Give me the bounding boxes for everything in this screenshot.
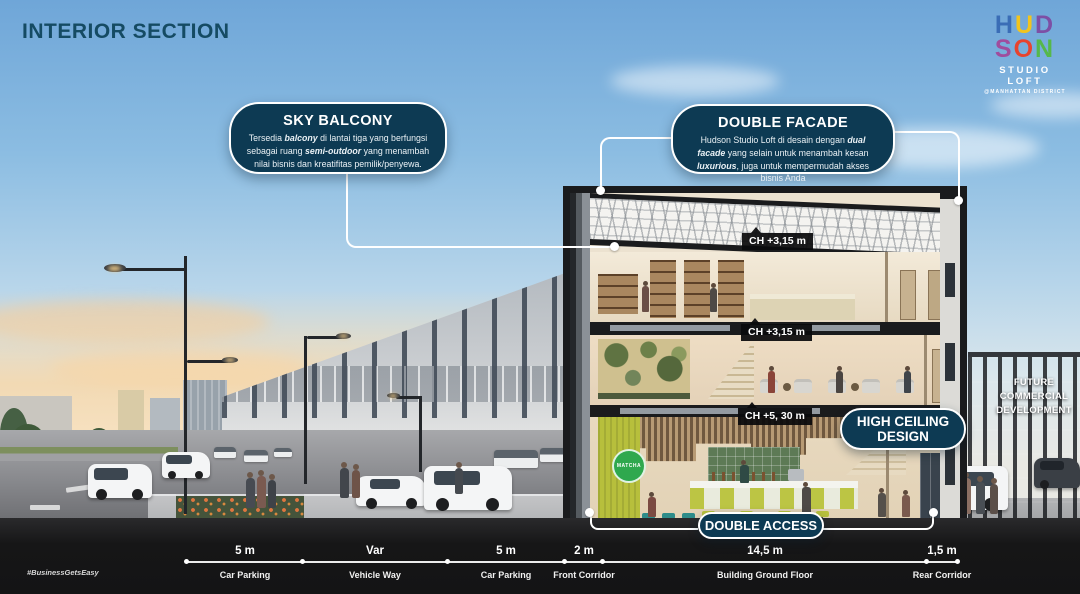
double-access-badge: DOUBLE ACCESS	[698, 512, 824, 539]
person-silhouette	[268, 480, 276, 508]
interior-wall	[924, 335, 927, 405]
dimension-label: Car Parking	[185, 570, 305, 580]
high-ceiling-badge: HIGH CEILING DESIGN	[840, 408, 966, 450]
person-silhouette	[246, 478, 255, 508]
high-ceiling-text: HIGH CEILING DESIGN	[856, 414, 950, 444]
connector-dot	[610, 242, 619, 251]
dimension-label: Front Corridor	[524, 570, 644, 580]
person-silhouette	[352, 470, 360, 498]
side-table	[783, 383, 791, 391]
person-silhouette	[257, 476, 266, 508]
reception-counter	[750, 294, 855, 320]
poster: FUTURE COMMERCIAL DEVELOPMENT	[0, 0, 1080, 594]
ceiling-height-text: CH +5, 30 m	[745, 410, 805, 422]
person-silhouette	[455, 468, 463, 494]
connector-double-access-right	[822, 516, 934, 530]
logo-district: @MANHATTAN DISTRICT	[983, 89, 1067, 95]
street-light-arm	[396, 396, 420, 399]
car	[356, 476, 426, 506]
car-window	[1040, 461, 1064, 470]
interior-wall	[886, 447, 889, 523]
car-wheel	[366, 498, 377, 509]
car-wheel	[1040, 480, 1049, 489]
rear-facade	[940, 193, 960, 537]
dimension-value: 5 m	[185, 545, 305, 557]
dimension-value: 2 m	[524, 545, 644, 557]
dimension-label: Rear Corridor	[882, 570, 1002, 580]
lane-marking	[30, 505, 60, 510]
connector-dot	[929, 508, 938, 517]
car	[244, 450, 268, 462]
car	[274, 448, 292, 457]
bar-counter	[690, 481, 858, 509]
connector-dot	[596, 186, 605, 195]
logo-letter: N	[1035, 35, 1055, 63]
person-silhouette	[768, 371, 775, 393]
rear-window	[945, 343, 955, 381]
dimension-segment: 1,5 m Rear Corridor	[882, 545, 1002, 580]
matcha-cafe-sign: MATCHA	[617, 463, 641, 469]
car	[162, 452, 210, 478]
matcha-cafe-logo: MATCHA	[612, 449, 646, 483]
car-wheel	[132, 489, 143, 500]
lamp-glow	[389, 394, 397, 398]
car-wheel	[96, 489, 107, 500]
connector-dot	[954, 196, 963, 205]
dimension-label: Building Ground Floor	[705, 570, 825, 580]
dimension-segment: 2 m Front Corridor	[524, 545, 644, 580]
person-silhouette	[878, 493, 886, 517]
connector-dot	[585, 508, 594, 517]
door	[928, 270, 940, 320]
car-window	[94, 468, 128, 480]
street-light-pole	[419, 396, 422, 472]
logo-studio-loft: STUDIO LOFT	[983, 65, 1067, 87]
double-access-text: DOUBLE ACCESS	[705, 518, 817, 533]
dimension-segment: Var Vehicle Way	[315, 545, 435, 580]
callout-title: DOUBLE FACADE	[687, 115, 879, 131]
dimension-value: 1,5 m	[882, 545, 1002, 557]
callout-body: Tersedia balcony di lantai tiga yang ber…	[245, 132, 431, 170]
bookshelf	[684, 260, 710, 318]
lamp-glow	[339, 334, 348, 338]
callout-title: SKY BALCONY	[245, 113, 431, 129]
ceiling-height-text: CH +3,15 m	[749, 235, 806, 247]
lamp-glow	[225, 358, 235, 362]
car	[88, 464, 152, 498]
car-wheel	[406, 498, 417, 509]
wall-mural	[598, 339, 690, 399]
sky-balcony-callout: SKY BALCONY Tersedia balcony di lantai t…	[229, 102, 447, 174]
coffee-machine	[788, 469, 804, 481]
person-silhouette	[740, 465, 749, 483]
ceiling-height-label: CH +3,15 m	[742, 233, 813, 250]
future-development-label: FUTURE COMMERCIAL DEVELOPMENT	[988, 376, 1080, 417]
bookshelf	[718, 260, 744, 318]
dimension-label: Vehicle Way	[315, 570, 435, 580]
logo-letter: O	[1014, 35, 1035, 63]
person-silhouette	[902, 495, 910, 517]
cloud	[990, 92, 1080, 118]
lamp-glow	[108, 266, 121, 271]
person-silhouette	[836, 371, 843, 393]
person-silhouette	[710, 288, 717, 312]
hashtag: #BusinessGetsEasy	[27, 568, 99, 577]
door	[900, 270, 916, 320]
double-facade-callout: DOUBLE FACADE Hudson Studio Loft di desa…	[671, 104, 895, 174]
person-silhouette	[340, 468, 349, 498]
floor-two-lounge	[590, 335, 940, 405]
connector-double-facade-right	[894, 131, 960, 201]
person-silhouette	[976, 482, 985, 514]
person-silhouette	[990, 484, 998, 514]
dimension-value: Var	[315, 545, 435, 557]
lounge-chair	[794, 379, 812, 393]
car-wheel	[195, 471, 203, 479]
lounge-chair	[862, 379, 880, 393]
callout-body: Hudson Studio Loft di desain dengan dual…	[687, 134, 879, 185]
staircase	[708, 341, 754, 399]
hudson-logo-letters: HUD SON	[983, 14, 1067, 61]
person-silhouette	[642, 286, 649, 312]
side-table	[851, 383, 859, 391]
bookshelf	[650, 260, 676, 318]
person-silhouette	[904, 371, 911, 393]
floor-three-library	[590, 252, 940, 322]
car-wheel	[486, 498, 499, 511]
car	[1034, 458, 1080, 488]
car	[214, 447, 236, 458]
car	[424, 466, 512, 510]
hudson-logo: HUD SON STUDIO LOFT @MANHATTAN DISTRICT	[983, 14, 1067, 95]
car-window	[166, 455, 192, 464]
cloud	[610, 66, 780, 96]
dimension-value: 14,5 m	[705, 545, 825, 557]
connector-double-facade-left	[600, 137, 672, 190]
car-wheel	[436, 498, 449, 511]
slab-panel	[610, 325, 730, 331]
street-light-arm	[120, 268, 186, 271]
page-title: INTERIOR SECTION	[22, 20, 230, 44]
connector-sky-balcony	[346, 173, 614, 248]
logo-letter: S	[995, 35, 1014, 63]
car-window	[370, 479, 400, 489]
street-light-pole	[304, 336, 307, 484]
door	[932, 349, 940, 403]
dimension-segment: 14,5 m Building Ground Floor	[705, 545, 825, 580]
ceiling-height-label: CH +5, 30 m	[738, 408, 812, 425]
car-wheel	[168, 471, 176, 479]
rear-window	[945, 263, 955, 297]
flower-bed	[176, 494, 304, 520]
ceiling-height-text: CH +3,15 m	[748, 326, 805, 338]
ceiling-height-label: CH +3,15 m	[741, 324, 812, 341]
bookshelf	[598, 274, 638, 314]
person-silhouette	[648, 497, 656, 517]
connector-double-access-left	[590, 516, 698, 530]
dimension-segment: 5 m Car Parking	[185, 545, 305, 580]
road-median	[0, 447, 178, 461]
interior-wall	[885, 252, 888, 322]
